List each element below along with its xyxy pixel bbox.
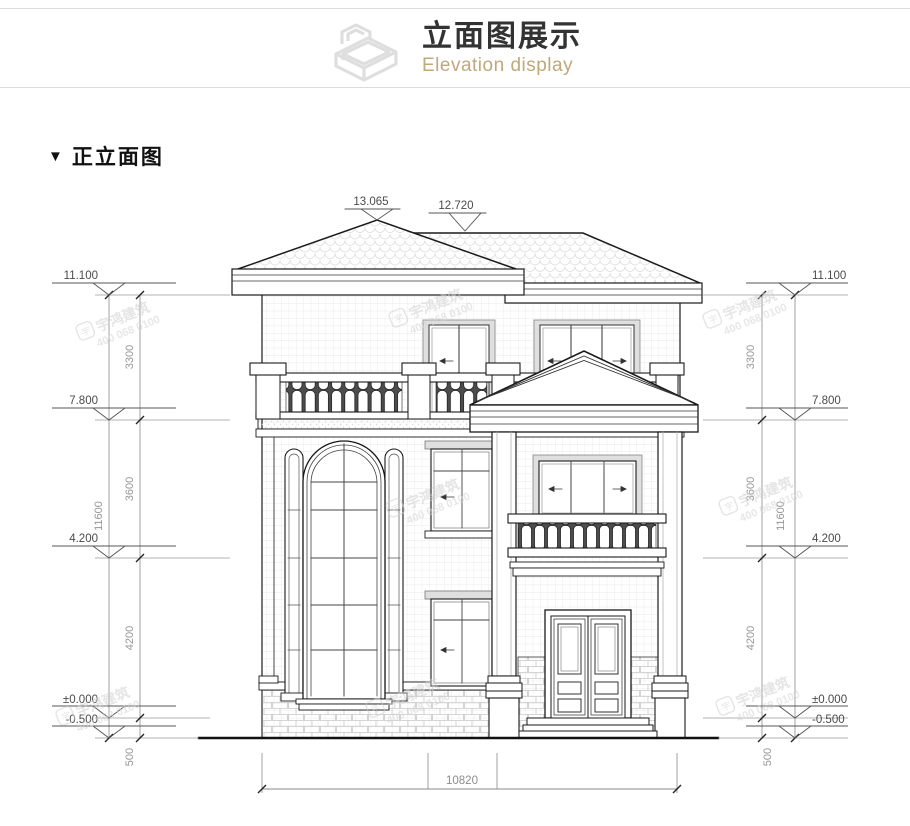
column-pedestal bbox=[655, 698, 685, 738]
page: 立面图展示 Elevation display ▼ 正立面图 bbox=[0, 0, 910, 826]
porch-window bbox=[533, 455, 642, 521]
dim-height-3300: 3300 bbox=[124, 345, 136, 369]
dim-height-4200: 4200 bbox=[124, 626, 136, 650]
eave-cornice-right bbox=[505, 283, 702, 303]
dim-total-height: 11600 bbox=[93, 501, 105, 531]
dim-height-3300: 3300 bbox=[745, 345, 757, 369]
page-header: 立面图展示 Elevation display bbox=[0, 9, 910, 87]
section-heading: ▼ 正立面图 bbox=[48, 141, 164, 171]
svg-text:13.065: 13.065 bbox=[353, 196, 388, 208]
svg-text:11.100: 11.100 bbox=[812, 270, 846, 282]
svg-text:12.720: 12.720 bbox=[438, 200, 473, 212]
column-pedestal bbox=[489, 698, 519, 738]
dim-height-3600: 3600 bbox=[124, 477, 136, 501]
balcony-band bbox=[510, 562, 664, 568]
eave-cornice-left bbox=[232, 269, 524, 295]
svg-text:4.200: 4.200 bbox=[812, 533, 841, 545]
dim-height-4200: 4200 bbox=[745, 626, 757, 650]
page-subtitle: Elevation display bbox=[422, 56, 573, 77]
porch-column-right bbox=[652, 432, 688, 738]
svg-text:11.100: 11.100 bbox=[64, 270, 98, 282]
page-title: 立面图展示 bbox=[422, 20, 582, 53]
svg-text:7.800: 7.800 bbox=[69, 395, 98, 407]
balcony-balustrade bbox=[508, 514, 666, 576]
dim-height-500: 500 bbox=[124, 748, 136, 766]
first-floor-window-middle bbox=[425, 591, 498, 686]
svg-text:7.800: 7.800 bbox=[812, 395, 841, 407]
svg-text:±0.000: ±0.000 bbox=[812, 694, 847, 706]
front-door bbox=[545, 610, 631, 718]
grand-arched-window bbox=[296, 441, 392, 710]
triangle-bullet-icon: ▼ bbox=[48, 148, 63, 165]
entrance-steps bbox=[519, 718, 657, 738]
svg-text:4.200: 4.200 bbox=[69, 533, 98, 545]
dim-total-width: 10820 bbox=[446, 775, 478, 787]
dim-height-500: 500 bbox=[762, 748, 774, 766]
elevation-drawing: 13.065 12.720 11.100 7.800 bbox=[0, 180, 910, 826]
header-bottom-rule bbox=[0, 87, 910, 88]
section-title: 正立面图 bbox=[72, 141, 164, 171]
svg-text:-0.500: -0.500 bbox=[812, 714, 845, 726]
house-3d-icon bbox=[328, 14, 404, 82]
